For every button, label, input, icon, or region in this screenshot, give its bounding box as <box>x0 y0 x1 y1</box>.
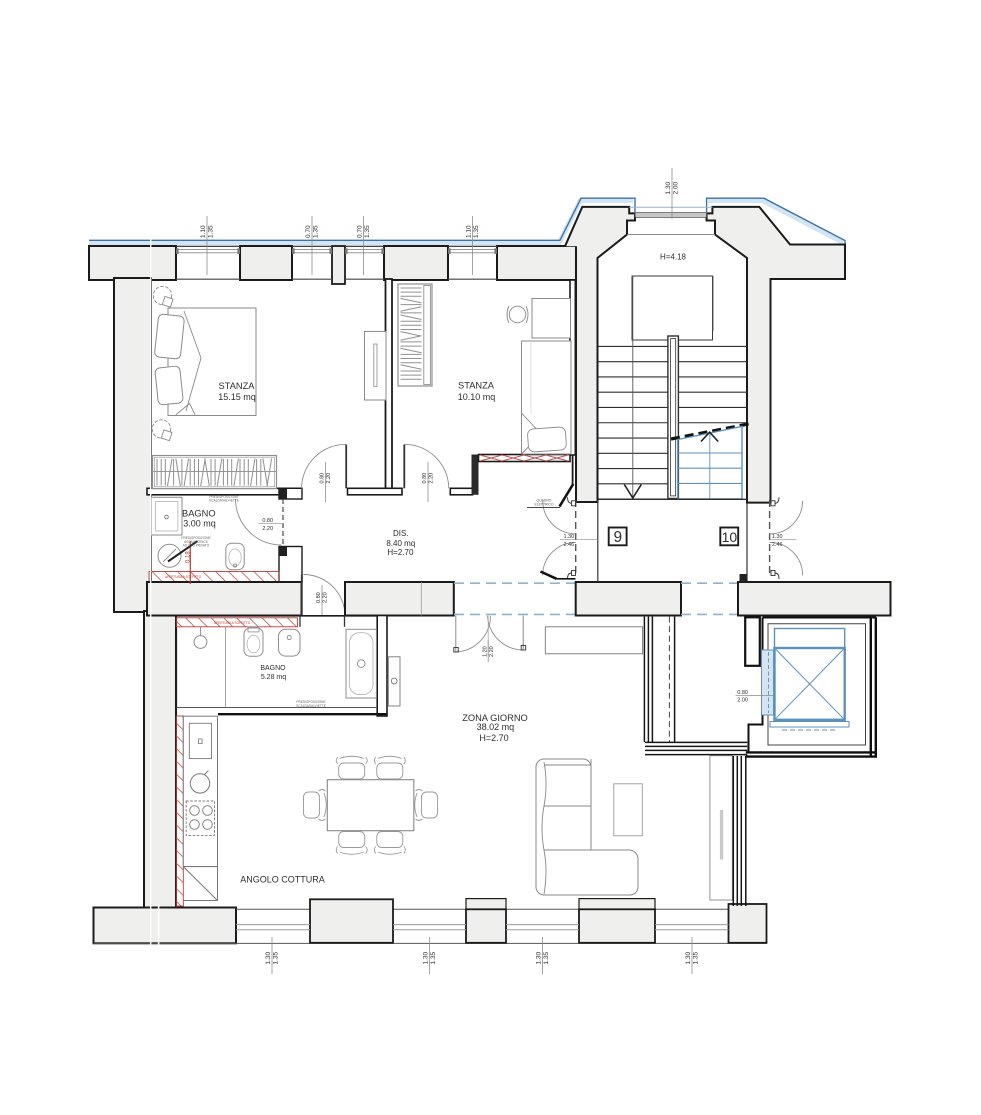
svg-text:2.00: 2.00 <box>737 698 748 704</box>
svg-text:38.02 mq: 38.02 mq <box>477 722 515 732</box>
svg-text:H=4.18: H=4.18 <box>660 253 687 262</box>
svg-text:1.30: 1.30 <box>665 181 672 194</box>
svg-text:10.10 mq: 10.10 mq <box>458 392 496 402</box>
svg-text:BAGNO: BAGNO <box>182 509 216 519</box>
svg-text:0.70: 0.70 <box>305 225 312 238</box>
svg-text:1.30: 1.30 <box>536 951 543 964</box>
svg-text:H=2.70: H=2.70 <box>479 733 508 743</box>
svg-text:1.10: 1.10 <box>200 225 207 238</box>
svg-text:1.30: 1.30 <box>563 534 574 540</box>
svg-text:2.20: 2.20 <box>326 473 332 484</box>
svg-text:0.80: 0.80 <box>262 518 273 524</box>
svg-text:DIS.: DIS. <box>393 529 409 538</box>
svg-text:8.40 mq: 8.40 mq <box>386 539 415 548</box>
svg-text:BAGNO: BAGNO <box>260 665 286 672</box>
svg-text:AD USO PRIVATO: AD USO PRIVATO <box>183 544 210 548</box>
svg-text:1.35: 1.35 <box>473 225 480 238</box>
svg-text:SCALDASALVIETTE: SCALDASALVIETTE <box>296 704 326 708</box>
svg-text:1.35: 1.35 <box>693 951 700 964</box>
svg-text:1.30: 1.30 <box>685 951 692 964</box>
svg-text:1.35: 1.35 <box>543 951 550 964</box>
svg-text:1.35: 1.35 <box>430 951 437 964</box>
svg-text:H=2.70: H=2.70 <box>387 548 414 557</box>
svg-text:0.80: 0.80 <box>316 592 322 603</box>
svg-text:0.80: 0.80 <box>422 473 428 484</box>
svg-text:STANZA: STANZA <box>458 381 495 391</box>
svg-text:2.20: 2.20 <box>323 592 329 603</box>
svg-text:1.30: 1.30 <box>423 951 430 964</box>
svg-text:9: 9 <box>613 529 622 546</box>
svg-text:3.00 mq: 3.00 mq <box>183 518 216 528</box>
svg-text:ELETTRICO: ELETTRICO <box>534 503 553 507</box>
svg-text:0,18: 0,18 <box>186 551 192 563</box>
svg-text:1.30: 1.30 <box>772 534 783 540</box>
svg-text:2.46: 2.46 <box>772 542 783 548</box>
svg-text:APERTURA A SOFFITTO: APERTURA A SOFFITTO <box>165 575 202 579</box>
svg-text:2.46: 2.46 <box>563 542 574 548</box>
svg-text:1.10: 1.10 <box>466 225 473 238</box>
svg-text:2.20: 2.20 <box>489 646 495 657</box>
svg-text:1.35: 1.35 <box>208 225 215 238</box>
svg-text:APERTURA A SOFFITTO: APERTURA A SOFFITTO <box>214 621 251 625</box>
svg-text:SCALDASALVIETTE: SCALDASALVIETTE <box>209 499 239 503</box>
svg-text:0.80: 0.80 <box>737 690 748 696</box>
svg-text:ANGOLO COTTURA: ANGOLO COTTURA <box>240 875 325 885</box>
svg-text:1.35: 1.35 <box>313 225 320 238</box>
svg-text:1.35: 1.35 <box>364 225 371 238</box>
svg-text:10: 10 <box>722 529 738 545</box>
svg-text:2.00: 2.00 <box>673 181 680 194</box>
svg-text:0.70: 0.70 <box>357 225 364 238</box>
svg-text:0.80: 0.80 <box>320 473 326 484</box>
svg-text:2.20: 2.20 <box>262 526 273 532</box>
svg-text:1.35: 1.35 <box>273 951 280 964</box>
svg-text:1.20: 1.20 <box>482 646 488 657</box>
svg-text:1.30: 1.30 <box>265 951 272 964</box>
svg-text:2.20: 2.20 <box>429 473 435 484</box>
svg-text:STANZA: STANZA <box>219 381 256 391</box>
svg-text:5.28 mq: 5.28 mq <box>261 674 286 681</box>
svg-text:15.15 mq: 15.15 mq <box>218 392 256 402</box>
